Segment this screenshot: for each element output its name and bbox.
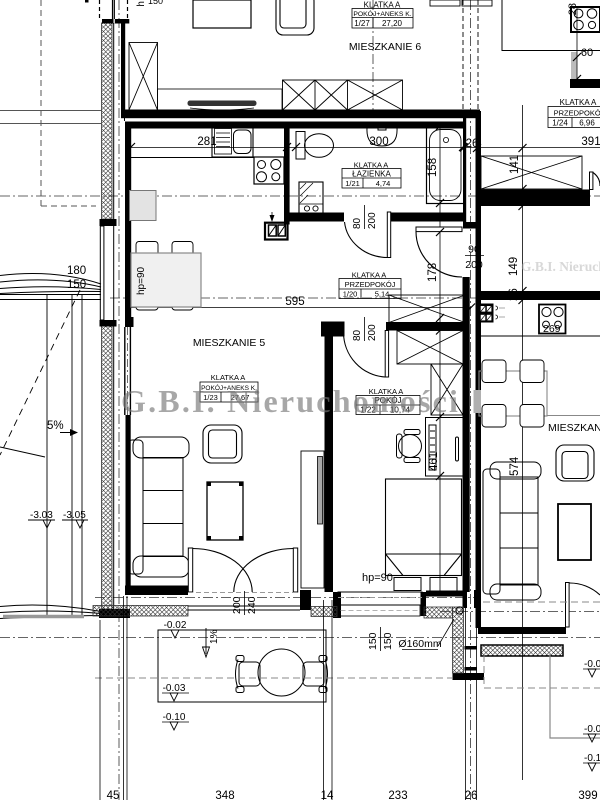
svg-text:45: 45: [107, 790, 120, 800]
svg-text:1/21: 1/21: [345, 179, 360, 188]
svg-text:141: 141: [509, 155, 521, 174]
svg-text:149: 149: [508, 257, 520, 276]
svg-text:80: 80: [352, 217, 363, 229]
svg-text:5%: 5%: [47, 420, 64, 432]
svg-text:348: 348: [215, 790, 234, 800]
svg-text:399: 399: [578, 790, 597, 800]
svg-text:KLATKA A: KLATKA A: [211, 373, 245, 382]
svg-text:391: 391: [581, 136, 600, 148]
svg-text:233: 233: [388, 790, 407, 800]
svg-text:PRZEDPOKÓJ: PRZEDPOKÓJ: [345, 280, 396, 289]
svg-text:269: 269: [543, 323, 561, 335]
svg-text:80: 80: [352, 329, 363, 341]
svg-text:h: h: [136, 1, 147, 7]
svg-text:178: 178: [427, 263, 439, 282]
svg-text:574: 574: [509, 456, 521, 476]
svg-text:-0.10: -0.10: [163, 712, 186, 723]
svg-text:-3.05: -3.05: [63, 510, 86, 521]
svg-text:-0.02: -0.02: [164, 620, 187, 631]
svg-text:MIESZKANIE 5: MIESZKANIE 5: [193, 337, 266, 349]
svg-text:150: 150: [382, 632, 394, 650]
svg-text:240: 240: [246, 596, 258, 614]
svg-text:G.B.I. Nieruchomości: G.B.I. Nieruchomości: [121, 383, 460, 419]
svg-text:KLATKA A: KLATKA A: [560, 98, 597, 107]
svg-text:150: 150: [367, 632, 379, 650]
svg-text:200: 200: [465, 259, 483, 271]
svg-text:27,20: 27,20: [382, 19, 403, 28]
svg-text:G.B.I. Nieruchomości: G.B.I. Nieruchomości: [521, 259, 600, 274]
svg-text:ŁAZIENKA: ŁAZIENKA: [352, 170, 391, 179]
svg-text:26: 26: [508, 189, 520, 202]
svg-text:6,96: 6,96: [579, 119, 595, 128]
svg-text:hp=90: hp=90: [136, 266, 147, 295]
svg-text:4,74: 4,74: [376, 179, 391, 188]
svg-text:150: 150: [67, 279, 86, 291]
svg-text:200: 200: [367, 324, 378, 341]
svg-text:Ø160mm: Ø160mm: [398, 638, 441, 650]
svg-text:5,14: 5,14: [375, 290, 390, 299]
svg-text:461: 461: [428, 452, 440, 471]
svg-text:1/27: 1/27: [354, 19, 370, 28]
svg-text:200: 200: [231, 596, 243, 614]
svg-text:300: 300: [369, 136, 388, 148]
svg-text:-0.02: -0.02: [584, 659, 600, 670]
svg-text:-0.03: -0.03: [584, 724, 600, 735]
svg-text:1%: 1%: [209, 629, 220, 644]
svg-text:595: 595: [285, 296, 304, 308]
svg-text:26: 26: [465, 790, 478, 800]
svg-text:158: 158: [427, 158, 439, 177]
svg-text:200: 200: [367, 212, 378, 229]
svg-text:150: 150: [148, 0, 163, 6]
svg-text:POKÓJ+ANEKS K.: POKÓJ+ANEKS K.: [353, 9, 411, 18]
svg-text:hp=90: hp=90: [362, 572, 393, 584]
svg-text:281: 281: [197, 136, 216, 148]
svg-text:26: 26: [508, 288, 520, 301]
svg-text:60: 60: [581, 47, 593, 59]
svg-text:-0.10: -0.10: [584, 753, 600, 764]
svg-text:1/24: 1/24: [552, 119, 568, 128]
svg-text:PRZEDPOKÓJ: PRZEDPOKÓJ: [554, 109, 600, 118]
svg-text:-3.03: -3.03: [30, 510, 53, 521]
svg-text:1/20: 1/20: [343, 290, 358, 299]
svg-text:MIESZKANIE 4: MIESZKANIE 4: [548, 422, 600, 434]
svg-text:180: 180: [67, 265, 86, 277]
svg-text:-0.03: -0.03: [163, 683, 186, 694]
svg-text:90: 90: [468, 244, 480, 256]
svg-text:14: 14: [321, 790, 334, 800]
svg-text:MIESZKANIE 6: MIESZKANIE 6: [349, 41, 422, 53]
